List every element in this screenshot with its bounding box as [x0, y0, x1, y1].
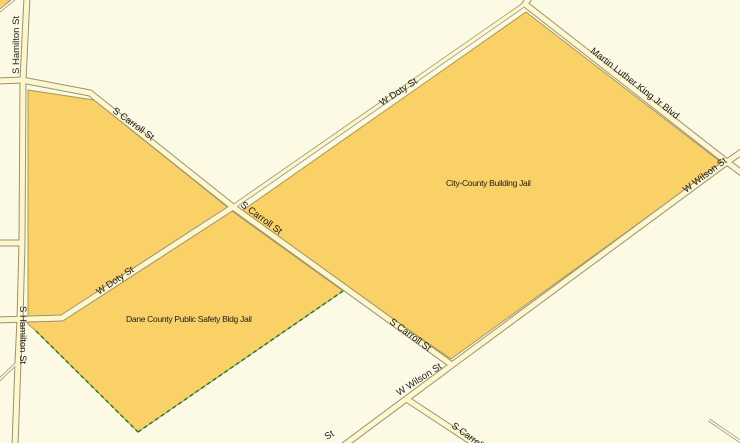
map-canvas[interactable]: S Hamilton St S Hamilton St S Carroll St… — [0, 0, 740, 443]
map-svg: S Hamilton St S Hamilton St S Carroll St… — [0, 0, 740, 443]
street-label-s-hamilton-st-bottom: S Hamilton St — [17, 306, 28, 364]
street-label-s-hamilton-st-top: S Hamilton St — [11, 16, 22, 74]
side-street-stub-upper-fill — [0, 80, 23, 81]
parcel-label-city-county-building-jail: City-County Building Jail — [446, 178, 531, 188]
parcel-label-dane-county-public-safety-bldg-jail: Dane County Public Safety Bldg Jail — [126, 314, 252, 324]
